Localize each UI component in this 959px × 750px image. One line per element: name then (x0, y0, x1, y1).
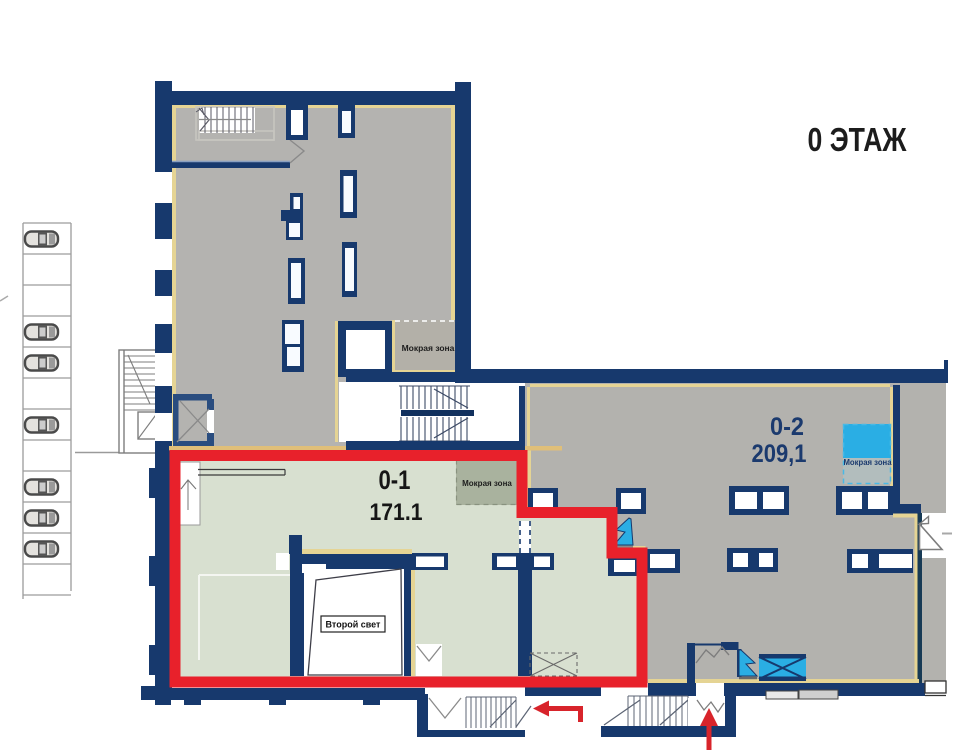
svg-text:0-1: 0-1 (379, 465, 411, 495)
svg-text:209,1: 209,1 (752, 440, 807, 468)
svg-text:0 ЭТАЖ: 0 ЭТАЖ (808, 121, 907, 158)
svg-text:171.1: 171.1 (370, 499, 423, 526)
svg-text:Второй свет: Второй свет (326, 620, 382, 630)
svg-text:0-2: 0-2 (770, 413, 804, 441)
svg-text:Мокрая зона: Мокрая зона (462, 479, 512, 488)
svg-text:Мокрая зона: Мокрая зона (402, 343, 455, 353)
svg-text:Мокрая зона: Мокрая зона (844, 458, 893, 467)
